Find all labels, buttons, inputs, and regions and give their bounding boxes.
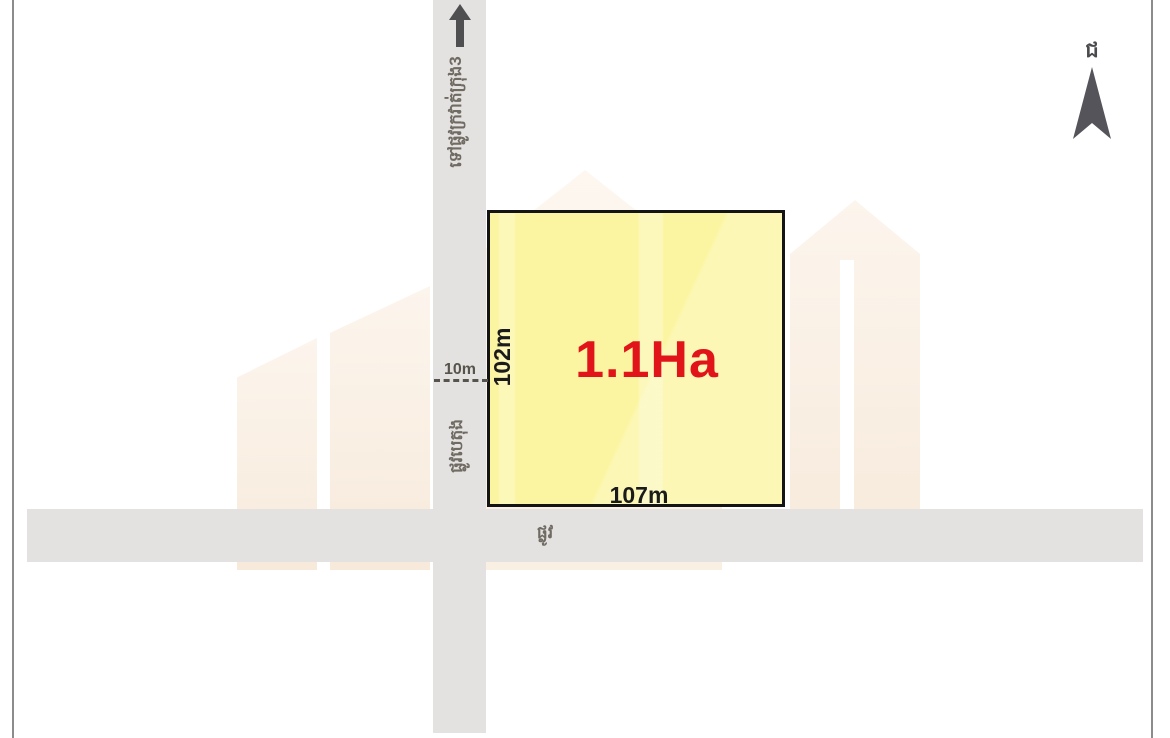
compass-north-letter: ជ xyxy=(1068,40,1116,61)
compass: ជ xyxy=(1068,40,1116,144)
frame-right-border xyxy=(1151,0,1153,738)
road-width-dashed-line xyxy=(434,379,488,382)
horizontal-road-name-label: ផ្លូវ xyxy=(515,524,575,541)
road-width-label: 10m xyxy=(430,362,490,378)
compass-north-arrow-icon xyxy=(1072,67,1112,139)
plot-area-label: 1.1Ha xyxy=(487,334,785,386)
frame-left-border xyxy=(12,0,14,738)
plot-left-dimension: 102m xyxy=(491,317,513,397)
horizontal-road xyxy=(27,509,1143,562)
plot-bottom-dimension: 107m xyxy=(589,484,689,507)
vertical-road-destination-label: ទៅផ្លូវក្រវាត់ក្រុង3 xyxy=(447,37,469,187)
land-plot-diagram: 1.1Ha 102m 107m ទៅផ្លូវក្រវាត់ក្រុង3 10m… xyxy=(0,0,1170,738)
watermark-house-right xyxy=(790,200,920,560)
vertical-road-name-label: ផ្លូវបេតុង xyxy=(448,391,470,501)
